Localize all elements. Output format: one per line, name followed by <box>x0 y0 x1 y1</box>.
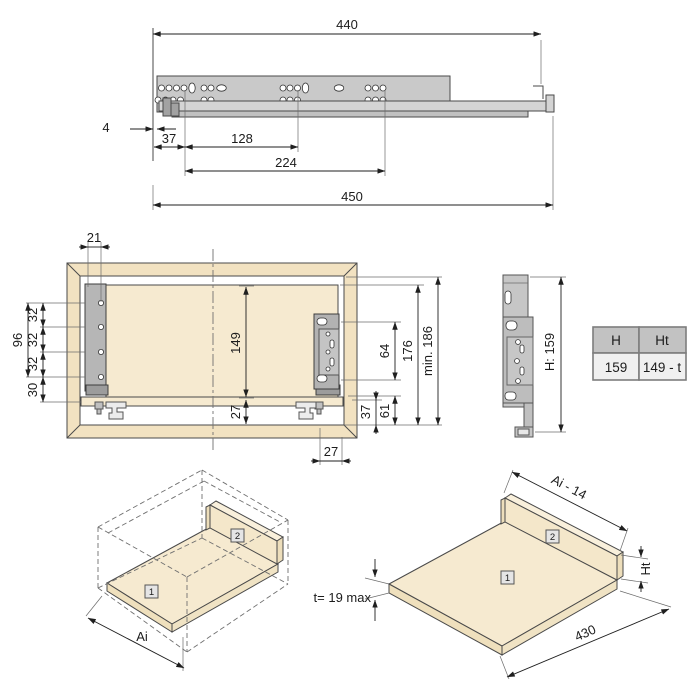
part-tag-bottom: 1 <box>505 573 510 584</box>
dim-27-center-label: 27 <box>228 405 243 419</box>
dim-440-label: 440 <box>336 17 358 32</box>
slide-end-cap <box>546 95 554 112</box>
dim-96-label: 96 <box>10 333 25 347</box>
panel-back-end-left <box>501 498 505 524</box>
iso-back-panel-end-left <box>206 505 210 530</box>
table-header-h: H <box>611 333 621 348</box>
dim-21-label: 21 <box>87 230 101 245</box>
iso-back-panel-end-right <box>277 537 283 564</box>
dim-128-label: 128 <box>231 131 253 146</box>
part-tag-back: 2 <box>235 531 240 542</box>
profile-leg <box>524 403 533 427</box>
table-value-ht: 149 - t <box>643 360 682 375</box>
dim-30-label: 30 <box>25 383 40 397</box>
dim-4-label: 4 <box>102 120 109 135</box>
profile-bracket-inner <box>507 337 533 385</box>
dim-149-label: 149 <box>228 332 243 354</box>
dim-176-label: 176 <box>400 340 415 362</box>
part-tag-back: 2 <box>550 532 555 543</box>
dim-37-front-label: 37 <box>358 405 373 419</box>
dim-64-label: 64 <box>377 344 392 358</box>
table-value-h: 159 <box>605 360 628 375</box>
front-clip-lever <box>171 103 179 116</box>
dim-224-label: 224 <box>275 155 297 170</box>
technical-drawing-page: 440 4 37 128 224 450 <box>0 0 700 700</box>
dim-thickness-label: t= 19 max <box>314 590 372 605</box>
dim-37-label: 37 <box>162 131 176 146</box>
front-clip <box>163 98 171 116</box>
dim-ai-label: Ai <box>136 629 148 644</box>
profile-foot-detail <box>518 429 529 435</box>
dim-27-side-label: 27 <box>324 444 338 459</box>
dim-32c-label: 32 <box>25 357 40 371</box>
table-header-ht: Ht <box>655 333 669 348</box>
drawing-canvas: 440 4 37 128 224 450 <box>0 0 700 700</box>
dim-32a-label: 32 <box>25 308 40 322</box>
dim-min186-label: min. 186 <box>420 326 435 376</box>
dim-ht-label: Ht <box>638 562 653 575</box>
dim-h159-label: H: 159 <box>542 333 557 371</box>
dim-32b-label: 32 <box>25 333 40 347</box>
spec-table: H Ht 159 149 - t <box>593 327 686 380</box>
dim-61-label: 61 <box>377 404 392 418</box>
dim-450-label: 450 <box>341 189 363 204</box>
part-tag-bottom: 1 <box>149 587 154 598</box>
panel-back-end-right <box>617 552 623 580</box>
slide-inner-member <box>159 101 550 111</box>
rail-foot-left <box>86 385 108 395</box>
drawer-back-panel <box>106 285 338 397</box>
